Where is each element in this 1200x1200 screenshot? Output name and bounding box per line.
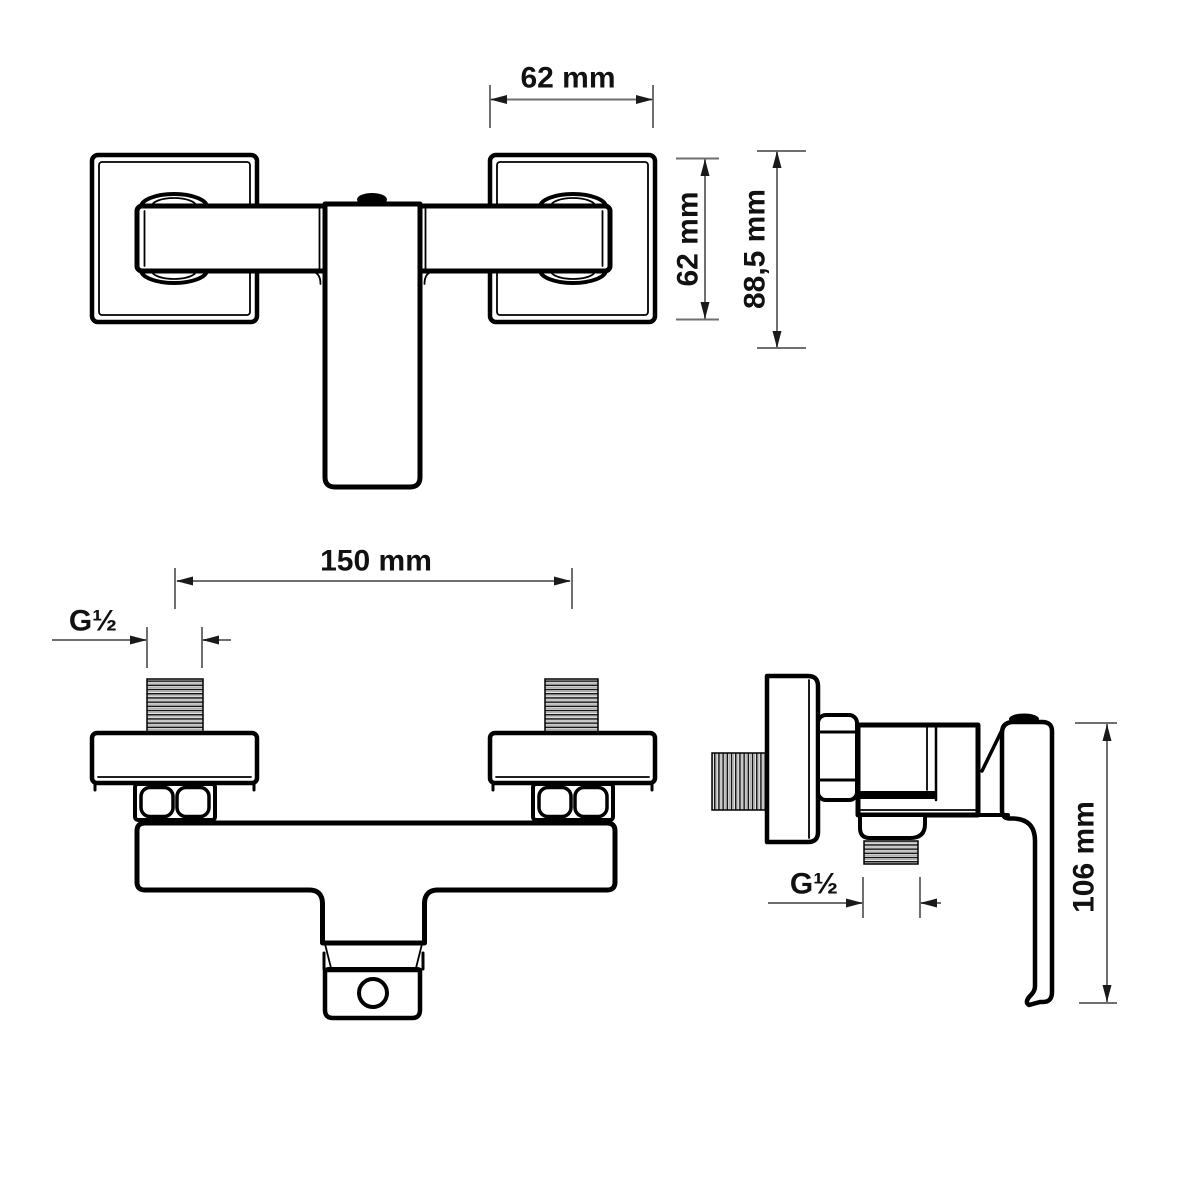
hex-nut-left-front bbox=[135, 784, 215, 820]
arrowhead-up bbox=[773, 151, 782, 168]
arrowhead-down bbox=[1103, 985, 1112, 1002]
hex-nut-side bbox=[818, 715, 857, 800]
inlet-thread-side bbox=[712, 753, 766, 810]
dimension-plate-height: 62 mm bbox=[672, 159, 720, 320]
arrowhead-left bbox=[490, 95, 507, 104]
inlet-thread-left bbox=[147, 679, 203, 733]
wall-plate-left-front bbox=[92, 733, 257, 783]
valve-body-side bbox=[858, 725, 978, 815]
arrowhead-down bbox=[701, 302, 710, 319]
top-view: 62 mm 62 mm 88,5 mm bbox=[92, 62, 806, 488]
dim-label-hole-distance: 150 mm bbox=[320, 545, 432, 578]
faucet-body-front bbox=[137, 823, 615, 943]
wall-plate-right-front bbox=[490, 733, 655, 783]
diagram-canvas: 62 mm 62 mm 88,5 mm bbox=[0, 0, 1200, 1200]
dim-label-plate-height: 62 mm bbox=[672, 191, 705, 286]
dimension-overall-height: 106 mm bbox=[1068, 723, 1118, 1003]
dim-label-inlet-thread: G½ bbox=[69, 605, 117, 638]
front-view: 150 mm G½ bbox=[52, 545, 655, 1019]
dim-label-outlet-thread: G½ bbox=[790, 868, 838, 901]
arrowhead-up bbox=[701, 159, 710, 176]
dim-label-overall-depth: 88,5 mm bbox=[739, 189, 772, 309]
arrowhead-left bbox=[920, 899, 937, 908]
technical-drawing-page: 62 mm 62 mm 88,5 mm bbox=[0, 0, 1200, 1200]
dimension-top-width: 62 mm bbox=[490, 62, 653, 129]
insert-slant bbox=[416, 944, 422, 968]
arrowhead-right bbox=[554, 577, 571, 586]
body-seal-band bbox=[859, 791, 936, 799]
dimension-overall-depth: 88,5 mm bbox=[739, 151, 807, 348]
hex-nut-right-front bbox=[533, 784, 613, 820]
insert-slant bbox=[325, 944, 331, 968]
arrowhead-left bbox=[202, 636, 219, 645]
dimension-hole-distance: 150 mm bbox=[175, 545, 572, 610]
dimension-inlet-thread: G½ bbox=[52, 605, 231, 669]
inlet-thread-right bbox=[545, 679, 598, 733]
outlet-connector-front bbox=[324, 944, 423, 1018]
handle-stem-top bbox=[325, 204, 420, 487]
arrowhead-right bbox=[636, 95, 653, 104]
outlet-collar bbox=[860, 815, 925, 838]
wall-plate-side bbox=[767, 676, 818, 842]
arrowhead-down bbox=[773, 331, 782, 348]
arrowhead-right bbox=[130, 636, 147, 645]
arrowhead-up bbox=[1103, 724, 1112, 741]
arrowhead-right bbox=[846, 899, 863, 908]
arrowhead-left bbox=[176, 577, 193, 586]
nut-body bbox=[818, 715, 857, 800]
dimension-outlet-thread: G½ bbox=[768, 868, 941, 919]
dim-label-overall-height: 106 mm bbox=[1068, 801, 1101, 913]
side-view: G½ 106 mm bbox=[712, 676, 1117, 1005]
lever-handle bbox=[1002, 722, 1052, 1005]
dim-label-top-width: 62 mm bbox=[520, 62, 615, 95]
handle-base-diagonal bbox=[982, 730, 1002, 771]
outlet-thread-side bbox=[864, 841, 918, 864]
